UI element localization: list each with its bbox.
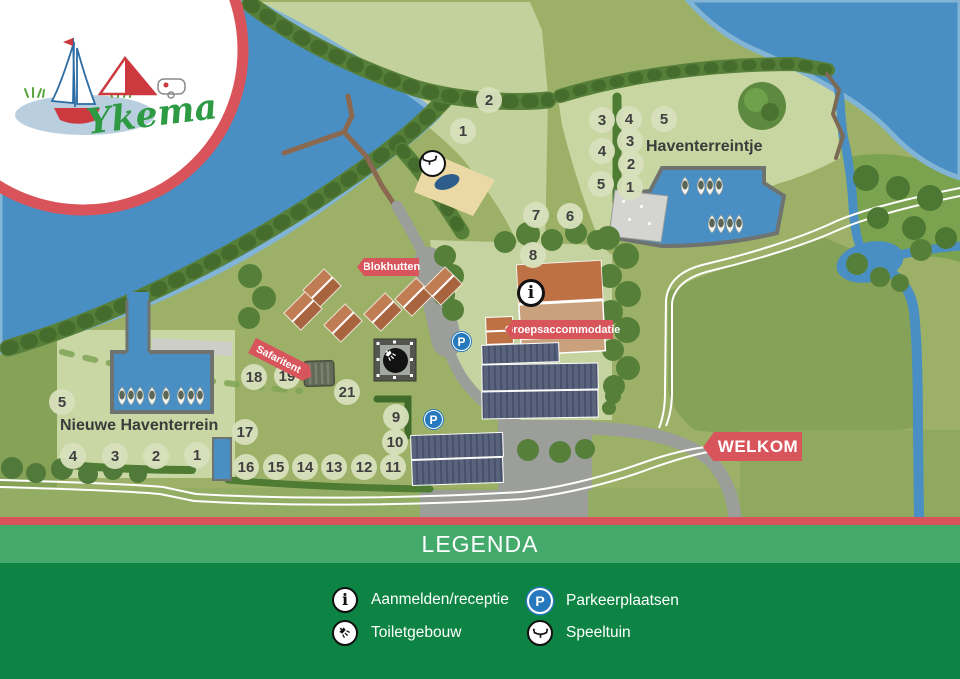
parking-glyph: P xyxy=(457,335,465,349)
banner-blokhutten: Blokhutten xyxy=(364,258,419,276)
plot-number-badge: 18 xyxy=(241,364,267,390)
legend-item-label: Toiletgebouw xyxy=(371,624,461,642)
groepsaccommodatie-building xyxy=(517,261,606,355)
plot-number-badge: 12 xyxy=(351,454,377,480)
legend-title: LEGENDA xyxy=(0,525,960,563)
shower-icon xyxy=(383,348,408,373)
info-glyph: i xyxy=(342,592,348,608)
plot-number-badge: 5 xyxy=(651,106,677,132)
shower-icon xyxy=(332,620,358,646)
plot-number-badge: 3 xyxy=(102,443,128,469)
plot-number-badge: 17 xyxy=(232,419,258,445)
legend-body: i Aanmelden/receptie P Parkeerplaatsen xyxy=(0,563,960,679)
plot-number-badge: 16 xyxy=(233,454,259,480)
harbor-side-channel xyxy=(213,438,231,480)
map-area: Ykema 1234543251768181921910171615141312… xyxy=(0,0,960,517)
plot-number-badge: 5 xyxy=(588,171,614,197)
plot-number-badge: 1 xyxy=(617,174,643,200)
parking-glyph: P xyxy=(429,413,437,427)
plot-number-badge: 21 xyxy=(334,379,360,405)
plot-number-badge: 11 xyxy=(380,454,406,480)
legend-item-playground: Speeltuin xyxy=(527,620,631,646)
plot-number-badge: 1 xyxy=(450,118,476,144)
plot-number-badge: 8 xyxy=(520,242,546,268)
info-icon: i xyxy=(332,587,358,613)
plot-number-badge: 15 xyxy=(263,454,289,480)
plot-number-badge: 4 xyxy=(589,138,615,164)
legend-item-label: Parkeerplaatsen xyxy=(566,592,679,610)
banner-groepsaccommodatie: Groepsaccommodatie xyxy=(512,320,613,339)
parking-glyph: P xyxy=(535,593,544,609)
info-glyph: i xyxy=(528,285,534,302)
plot-number-badge: 7 xyxy=(523,202,549,228)
playground-icon xyxy=(527,620,553,646)
area-label-nieuwe-haventerrein: Nieuwe Haventerrein xyxy=(60,417,218,435)
legend-red-divider xyxy=(0,517,960,525)
legend: LEGENDA i Aanmelden/receptie P Parkeerpl… xyxy=(0,517,960,679)
parking-icon: P xyxy=(527,588,553,614)
plot-number-badge: 2 xyxy=(476,87,502,113)
plot-number-badge: 5 xyxy=(49,389,75,415)
plot-number-badge: 10 xyxy=(382,429,408,455)
plot-number-badge: 14 xyxy=(292,454,318,480)
map-canvas: Ykema xyxy=(0,0,960,517)
plot-number-badge: 9 xyxy=(383,404,409,430)
legend-item-label: Speeltuin xyxy=(566,624,631,642)
plot-number-badge: 6 xyxy=(557,203,583,229)
info-icon: i xyxy=(517,279,545,307)
parking-icon: P xyxy=(452,332,471,351)
legend-item-parking: P Parkeerplaatsen xyxy=(527,588,679,614)
big-tree xyxy=(738,82,786,130)
plot-number-badge: 3 xyxy=(589,107,615,133)
ykema-campsite-map-page: Ykema 1234543251768181921910171615141312… xyxy=(0,0,960,679)
legend-item-label: Aanmelden/receptie xyxy=(371,591,509,609)
plot-number-badge: 4 xyxy=(60,443,86,469)
legend-item-reception: i Aanmelden/receptie xyxy=(332,587,509,613)
plot-number-badge: 1 xyxy=(184,442,210,468)
parking-icon: P xyxy=(424,410,443,429)
playground-icon xyxy=(419,150,446,177)
banner-welkom: WELKOM xyxy=(714,432,802,461)
plot-number-badge: 13 xyxy=(321,454,347,480)
legend-item-toilets: Toiletgebouw xyxy=(332,620,461,646)
area-label-haventerreintje: Haventerreintje xyxy=(646,138,763,156)
plot-number-badge: 2 xyxy=(143,443,169,469)
